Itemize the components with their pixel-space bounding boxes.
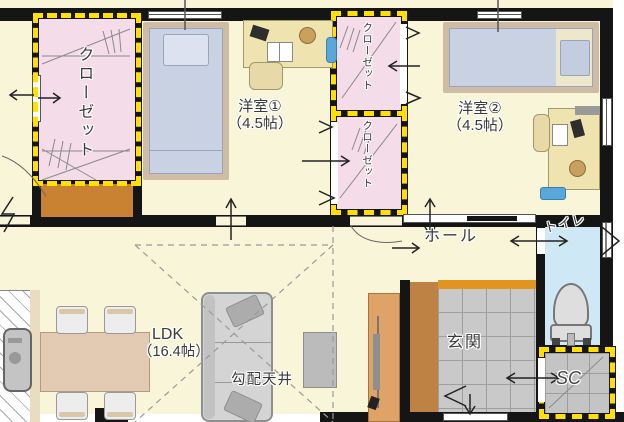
ldk-size: （16.4帖） xyxy=(138,344,210,361)
toilet-button xyxy=(567,333,575,346)
bedroom1-name: 洋室① xyxy=(200,98,320,115)
desk2-shelf xyxy=(575,106,600,115)
shoe-closet-label: SC xyxy=(556,368,581,389)
desk2-bag xyxy=(540,187,566,200)
ldk-label: LDK （16.4帖） xyxy=(138,326,210,361)
entrance-label: 玄関 xyxy=(447,334,483,352)
closet-lower-label: クローゼット xyxy=(361,120,373,210)
ldk-hall-door-opening xyxy=(350,216,402,226)
bedroom1-size: （4.5帖） xyxy=(200,115,320,132)
bedroom2-sliding-door-pocket xyxy=(467,216,517,221)
desk1-stool xyxy=(299,27,316,44)
desk1-chair xyxy=(249,62,283,90)
toilet-foot xyxy=(583,338,591,345)
dining-chair xyxy=(56,392,88,420)
window-top-bedroom1 xyxy=(148,11,222,19)
dining-chair xyxy=(56,306,88,334)
dining-chair xyxy=(104,306,136,334)
closet-lower-door xyxy=(331,122,338,204)
ldk-name: LDK xyxy=(138,326,210,344)
window-toilet xyxy=(602,222,612,258)
desk2-paper xyxy=(552,124,568,146)
closet-upper-door xyxy=(400,24,407,104)
bedroom1-door-opening xyxy=(216,216,246,226)
tv-screen xyxy=(373,334,380,390)
bedroom1-label: 洋室① （4.5帖） xyxy=(200,98,320,133)
front-door xyxy=(443,413,508,421)
window-top-bedroom2 xyxy=(477,11,522,19)
toilet-door-opening xyxy=(537,228,545,254)
desk1-paper-line xyxy=(279,43,280,61)
closet-upper-label: クローゼット xyxy=(361,22,373,112)
wall-ldk-entrance xyxy=(400,280,410,422)
bed2-pillow xyxy=(560,40,590,76)
shoe-closet-door xyxy=(538,358,545,402)
kitchen-sink-bar xyxy=(8,338,22,343)
bed1-blanket-line xyxy=(149,150,223,151)
closet-main-label: クローゼット xyxy=(74,46,92,176)
window-top-bedroom2-rail xyxy=(477,14,522,15)
living-table xyxy=(303,332,337,388)
dining-table xyxy=(40,332,150,392)
bedroom2-label: 洋室② （4.5帖） xyxy=(420,100,540,135)
desk2-stool xyxy=(569,160,586,177)
sloped-ceiling-label: 勾配天井 xyxy=(231,372,293,389)
dining-chair xyxy=(104,392,136,420)
bedroom2-size: （4.5帖） xyxy=(420,117,540,134)
window-right-bedroom2 xyxy=(602,98,612,146)
entrance-step-top xyxy=(438,280,536,289)
entrance-step-side xyxy=(408,282,438,412)
opening-left xyxy=(0,216,30,225)
toilet-foot xyxy=(552,338,560,345)
bed1-pillow xyxy=(163,34,209,66)
hall-label: ホール xyxy=(424,228,478,246)
window-top-bedroom1-rail xyxy=(148,14,222,15)
counter-under-closet xyxy=(41,184,133,217)
desk1-bag xyxy=(326,37,337,63)
floor-plan: クローゼット 洋室① （4.5帖） クローゼット クローゼット 洋室② （4.5… xyxy=(0,0,624,422)
sofa-seam xyxy=(215,342,271,343)
bedroom2-name: 洋室② xyxy=(420,100,540,117)
window-right-bedroom2-mullion xyxy=(606,98,607,146)
desk1-paper xyxy=(267,42,293,62)
kitchen-faucet xyxy=(9,352,21,364)
